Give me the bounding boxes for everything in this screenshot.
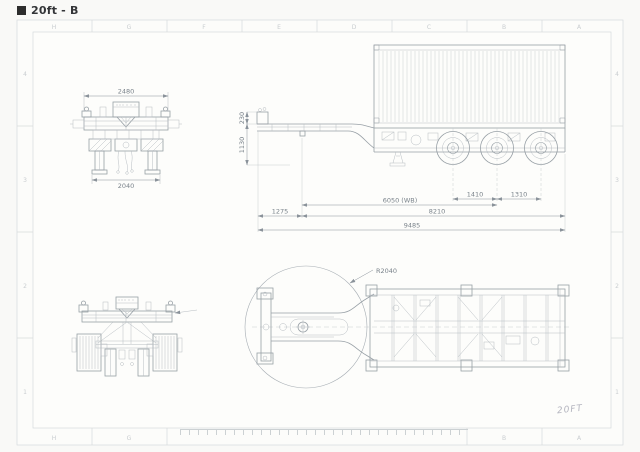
- dim-kingpin-to-rear: 8210: [429, 208, 446, 216]
- drawing-sheet: 20ft - B H G F E D C B A: [0, 0, 640, 452]
- grid-col-label: C: [427, 24, 431, 31]
- title-bullet-icon: [17, 6, 26, 15]
- grid-col-label: H: [52, 24, 57, 31]
- grid-col-label: F: [202, 24, 206, 31]
- grid-row-label: 1: [23, 389, 27, 396]
- dim-front-width-bottom: 2040: [118, 182, 135, 190]
- grid-row-label: 4: [23, 71, 27, 78]
- sheet-title: 20ft - B: [17, 3, 79, 17]
- grid-row-label: 4: [615, 71, 619, 78]
- dim-front-overhang: 1275: [272, 208, 289, 216]
- drawing-frame: [17, 20, 623, 445]
- dim-neck-step: 230: [238, 112, 246, 124]
- dim-front-width-top: 2480: [118, 88, 135, 96]
- dim-swing-radius: R2040: [376, 267, 397, 275]
- grid-col-label: G: [127, 24, 132, 31]
- grid-col-label: E: [277, 24, 281, 31]
- dim-axle-spacing-front: 1410: [467, 191, 484, 199]
- technical-drawing: H G F E D C B A H G B A 4 3 2 1 4 3 2 1: [0, 0, 640, 452]
- border-scale-bar: [180, 429, 468, 435]
- grid-col-label: B: [502, 435, 506, 442]
- dim-axle-spacing-rear: 1310: [511, 191, 528, 199]
- grid-row-label: 2: [23, 283, 27, 290]
- grid-row-label: 1: [615, 389, 619, 396]
- grid-col-label: D: [352, 24, 357, 31]
- grid-col-label: H: [52, 435, 57, 442]
- grid-row-label: 2: [615, 283, 619, 290]
- dim-wheelbase: 6050 (WB): [383, 197, 418, 205]
- dim-deck-height: 1130: [238, 137, 246, 154]
- dim-overall-length: 9485: [404, 222, 421, 230]
- title-text: 20ft - B: [31, 4, 79, 17]
- grid-col-label: B: [502, 24, 506, 31]
- grid-row-label: 3: [23, 177, 27, 184]
- grid-col-label: G: [127, 435, 132, 442]
- grid-row-label: 3: [615, 177, 619, 184]
